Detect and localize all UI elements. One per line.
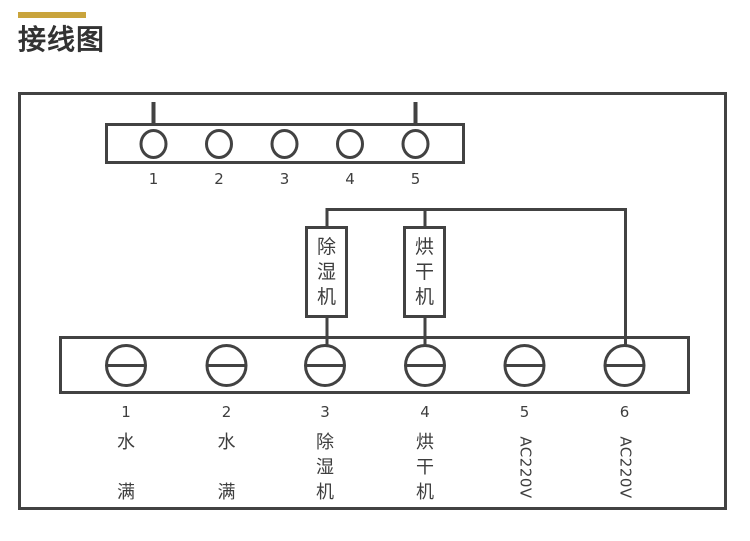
top-terminal-hole-1 <box>141 131 166 158</box>
bottom-terminal-number-2: 2 <box>207 404 247 420</box>
bottom-terminal-number-3: 3 <box>305 404 345 420</box>
bottom-terminal-number-6: 6 <box>605 404 645 420</box>
terminal-4-label-line-2: 干 <box>405 455 445 480</box>
terminal-2-label-line-1: 水 <box>207 430 247 455</box>
terminal-2-label-line-2 <box>207 455 247 480</box>
terminal-2-label: 水 满 <box>207 430 247 505</box>
bottom-terminal-number-1: 1 <box>106 404 146 420</box>
top-terminal-number-5: 5 <box>396 171 436 187</box>
terminal-4-label: 烘 干 机 <box>405 430 445 505</box>
bottom-terminal-number-4: 4 <box>405 404 445 420</box>
terminal-1-label: 水 满 <box>106 430 146 505</box>
terminal-1-label-line-2 <box>106 455 146 480</box>
terminal-3-label-line-3: 机 <box>305 480 345 505</box>
dehumidifier-box-label: 除 湿 机 <box>306 228 347 316</box>
terminal-1-label-line-3: 满 <box>106 480 146 505</box>
bus-wire <box>327 210 626 347</box>
terminal-6-label-ac220v: AC220V <box>612 430 637 506</box>
top-terminal-hole-3 <box>272 131 297 158</box>
top-terminal-number-3: 3 <box>265 171 305 187</box>
top-terminal-hole-4 <box>338 131 363 158</box>
terminal-3-label: 除 湿 机 <box>305 430 345 505</box>
dryer-char-2: 干 <box>415 260 434 285</box>
terminal-2-label-line-3: 满 <box>207 480 247 505</box>
top-terminal-hole-5 <box>403 131 428 158</box>
dryer-char-1: 烘 <box>415 235 434 260</box>
top-terminal-number-4: 4 <box>330 171 370 187</box>
terminal-4-label-line-3: 机 <box>405 480 445 505</box>
bottom-terminal-strip <box>61 338 689 393</box>
dehumidifier-char-2: 湿 <box>317 260 336 285</box>
top-terminal-number-1: 1 <box>134 171 174 187</box>
dryer-char-3: 机 <box>415 285 434 310</box>
bottom-terminal-number-5: 5 <box>505 404 545 420</box>
wiring-diagram-page: 接线图 <box>0 0 750 541</box>
terminal-1-label-line-1: 水 <box>106 430 146 455</box>
top-terminal-number-2: 2 <box>199 171 239 187</box>
terminal-5-label-ac220v: AC220V <box>512 430 537 506</box>
terminal-3-label-line-1: 除 <box>305 430 345 455</box>
dehumidifier-char-3: 机 <box>317 285 336 310</box>
terminal-4-label-line-1: 烘 <box>405 430 445 455</box>
dryer-box-label: 烘 干 机 <box>404 228 445 316</box>
terminal-3-label-line-2: 湿 <box>305 455 345 480</box>
top-terminal-hole-2 <box>207 131 232 158</box>
dehumidifier-char-1: 除 <box>317 235 336 260</box>
